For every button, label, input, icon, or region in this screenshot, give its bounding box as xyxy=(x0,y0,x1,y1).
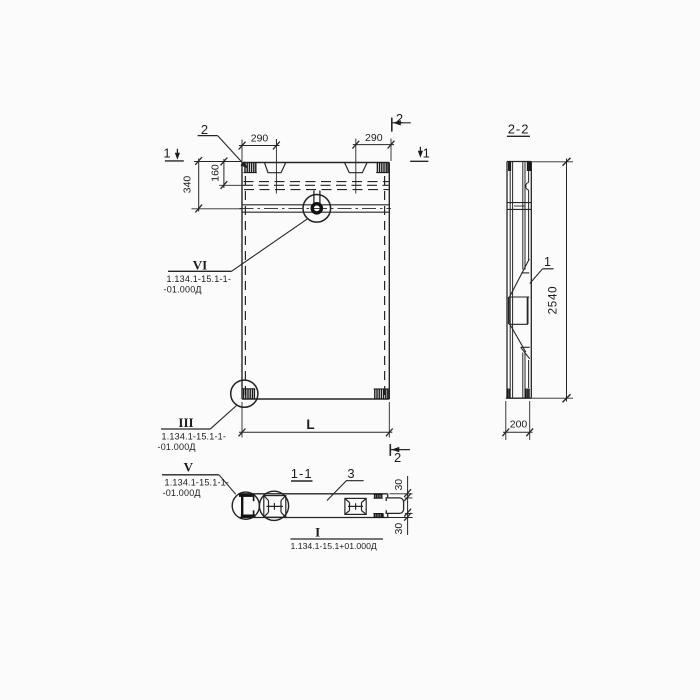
svg-text:-01.000Д: -01.000Д xyxy=(164,284,202,294)
svg-text:1.134.1-15.1-1-: 1.134.1-15.1-1- xyxy=(167,274,232,284)
svg-text:1: 1 xyxy=(423,146,430,161)
svg-text:2-2: 2-2 xyxy=(508,121,530,136)
svg-text:2: 2 xyxy=(394,450,401,465)
svg-text:V: V xyxy=(184,460,194,475)
svg-text:III: III xyxy=(178,415,193,430)
svg-text:-01.000Д: -01.000Д xyxy=(158,442,196,452)
svg-text:1: 1 xyxy=(163,146,170,161)
svg-text:30: 30 xyxy=(393,479,405,491)
svg-text:2: 2 xyxy=(396,111,403,126)
svg-text:340: 340 xyxy=(182,176,194,194)
svg-text:1.134.1-15.1-1-: 1.134.1-15.1-1- xyxy=(162,431,227,441)
svg-text:160: 160 xyxy=(209,164,221,182)
svg-text:30: 30 xyxy=(393,523,405,535)
svg-text:3: 3 xyxy=(347,466,354,481)
svg-text:2540: 2540 xyxy=(548,286,560,315)
svg-text:VI: VI xyxy=(193,258,207,273)
svg-text:I: I xyxy=(315,524,320,539)
svg-text:200: 200 xyxy=(510,419,528,431)
svg-text:290: 290 xyxy=(251,132,269,144)
svg-text:1.134.1-15.1+01.000Д: 1.134.1-15.1+01.000Д xyxy=(291,541,377,551)
svg-text:2: 2 xyxy=(201,122,208,137)
svg-text:L: L xyxy=(306,417,314,432)
svg-text:1: 1 xyxy=(544,255,551,269)
svg-text:1.134.1-15.1-1-: 1.134.1-15.1-1- xyxy=(165,477,230,487)
svg-text:-01.000Д: -01.000Д xyxy=(163,488,201,498)
svg-text:290: 290 xyxy=(365,132,383,144)
svg-text:1-1: 1-1 xyxy=(291,466,313,481)
